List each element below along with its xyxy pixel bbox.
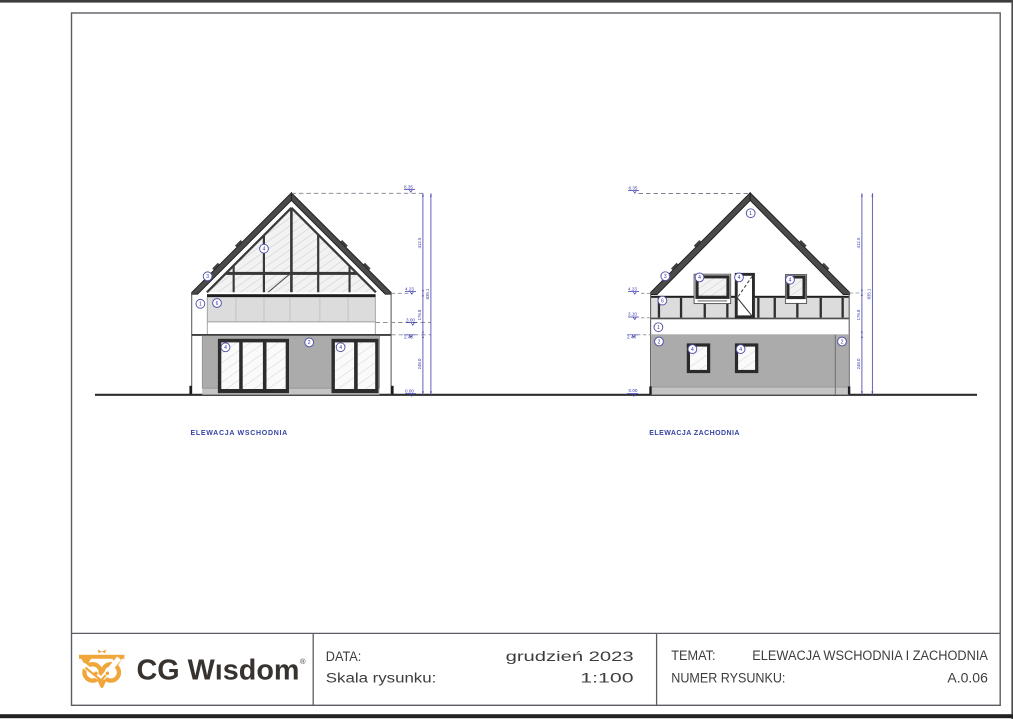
svg-text:1:100: 1:100 (580, 671, 633, 687)
svg-text:176.8: 176.8 (417, 309, 422, 320)
svg-text:1: 1 (199, 302, 202, 308)
svg-text:4.23: 4.23 (628, 287, 637, 292)
svg-text:4: 4 (738, 275, 741, 281)
svg-text:835.1: 835.1 (425, 288, 430, 299)
svg-text:4: 4 (263, 247, 266, 253)
svg-text:NUMER RYSUNKU:: NUMER RYSUNKU: (671, 671, 785, 687)
svg-text:248.0: 248.0 (417, 358, 422, 369)
svg-text:ELEWACJA WSCHODNIA: ELEWACJA WSCHODNIA (190, 430, 287, 437)
svg-text:2: 2 (658, 339, 661, 345)
svg-text:CG Wısdom: CG Wısdom (137, 654, 300, 686)
svg-text:1: 1 (657, 325, 660, 331)
svg-text:0.00: 0.00 (405, 388, 414, 393)
svg-text:1: 1 (749, 211, 752, 217)
svg-text:6: 6 (661, 298, 664, 304)
svg-text:ELEWACJA WSCHODNIA I ZACHOD: ELEWACJA WSCHODNIA I ZACHODNIA (752, 648, 988, 664)
svg-text:grudzień 2023: grudzień 2023 (506, 649, 634, 665)
svg-text:4: 4 (789, 278, 792, 284)
svg-text:4: 4 (739, 347, 742, 353)
svg-text:DATA:: DATA: (326, 649, 362, 665)
svg-text:8.35: 8.35 (404, 184, 413, 189)
svg-text:4: 4 (339, 345, 342, 351)
svg-text:412.5: 412.5 (417, 237, 422, 248)
svg-text:TEMAT:: TEMAT: (671, 648, 715, 664)
svg-text:8.35: 8.35 (629, 186, 638, 191)
svg-text:Skala rysunku:: Skala rysunku: (326, 671, 437, 687)
svg-text:3: 3 (206, 274, 209, 280)
svg-text:4.23: 4.23 (405, 286, 414, 291)
svg-text:®: ® (300, 657, 306, 666)
svg-text:3.10: 3.10 (628, 311, 637, 316)
svg-text:2: 2 (841, 339, 844, 345)
svg-text:6: 6 (216, 301, 219, 307)
svg-text:4: 4 (224, 345, 227, 351)
svg-text:A.0.06: A.0.06 (947, 671, 988, 687)
svg-text:4: 4 (691, 347, 694, 353)
svg-text:3.00: 3.00 (406, 317, 415, 322)
svg-text:835.1: 835.1 (867, 288, 872, 299)
svg-text:4: 4 (698, 275, 701, 281)
svg-text:176.8: 176.8 (856, 309, 861, 320)
svg-text:248.0: 248.0 (856, 358, 861, 369)
svg-text:0.00: 0.00 (629, 388, 638, 393)
svg-text:3: 3 (664, 274, 667, 280)
svg-text:412.5: 412.5 (856, 237, 861, 248)
svg-text:2: 2 (308, 340, 311, 346)
svg-text:ELEWACJA ZACHODNIA: ELEWACJA ZACHODNIA (649, 430, 740, 437)
